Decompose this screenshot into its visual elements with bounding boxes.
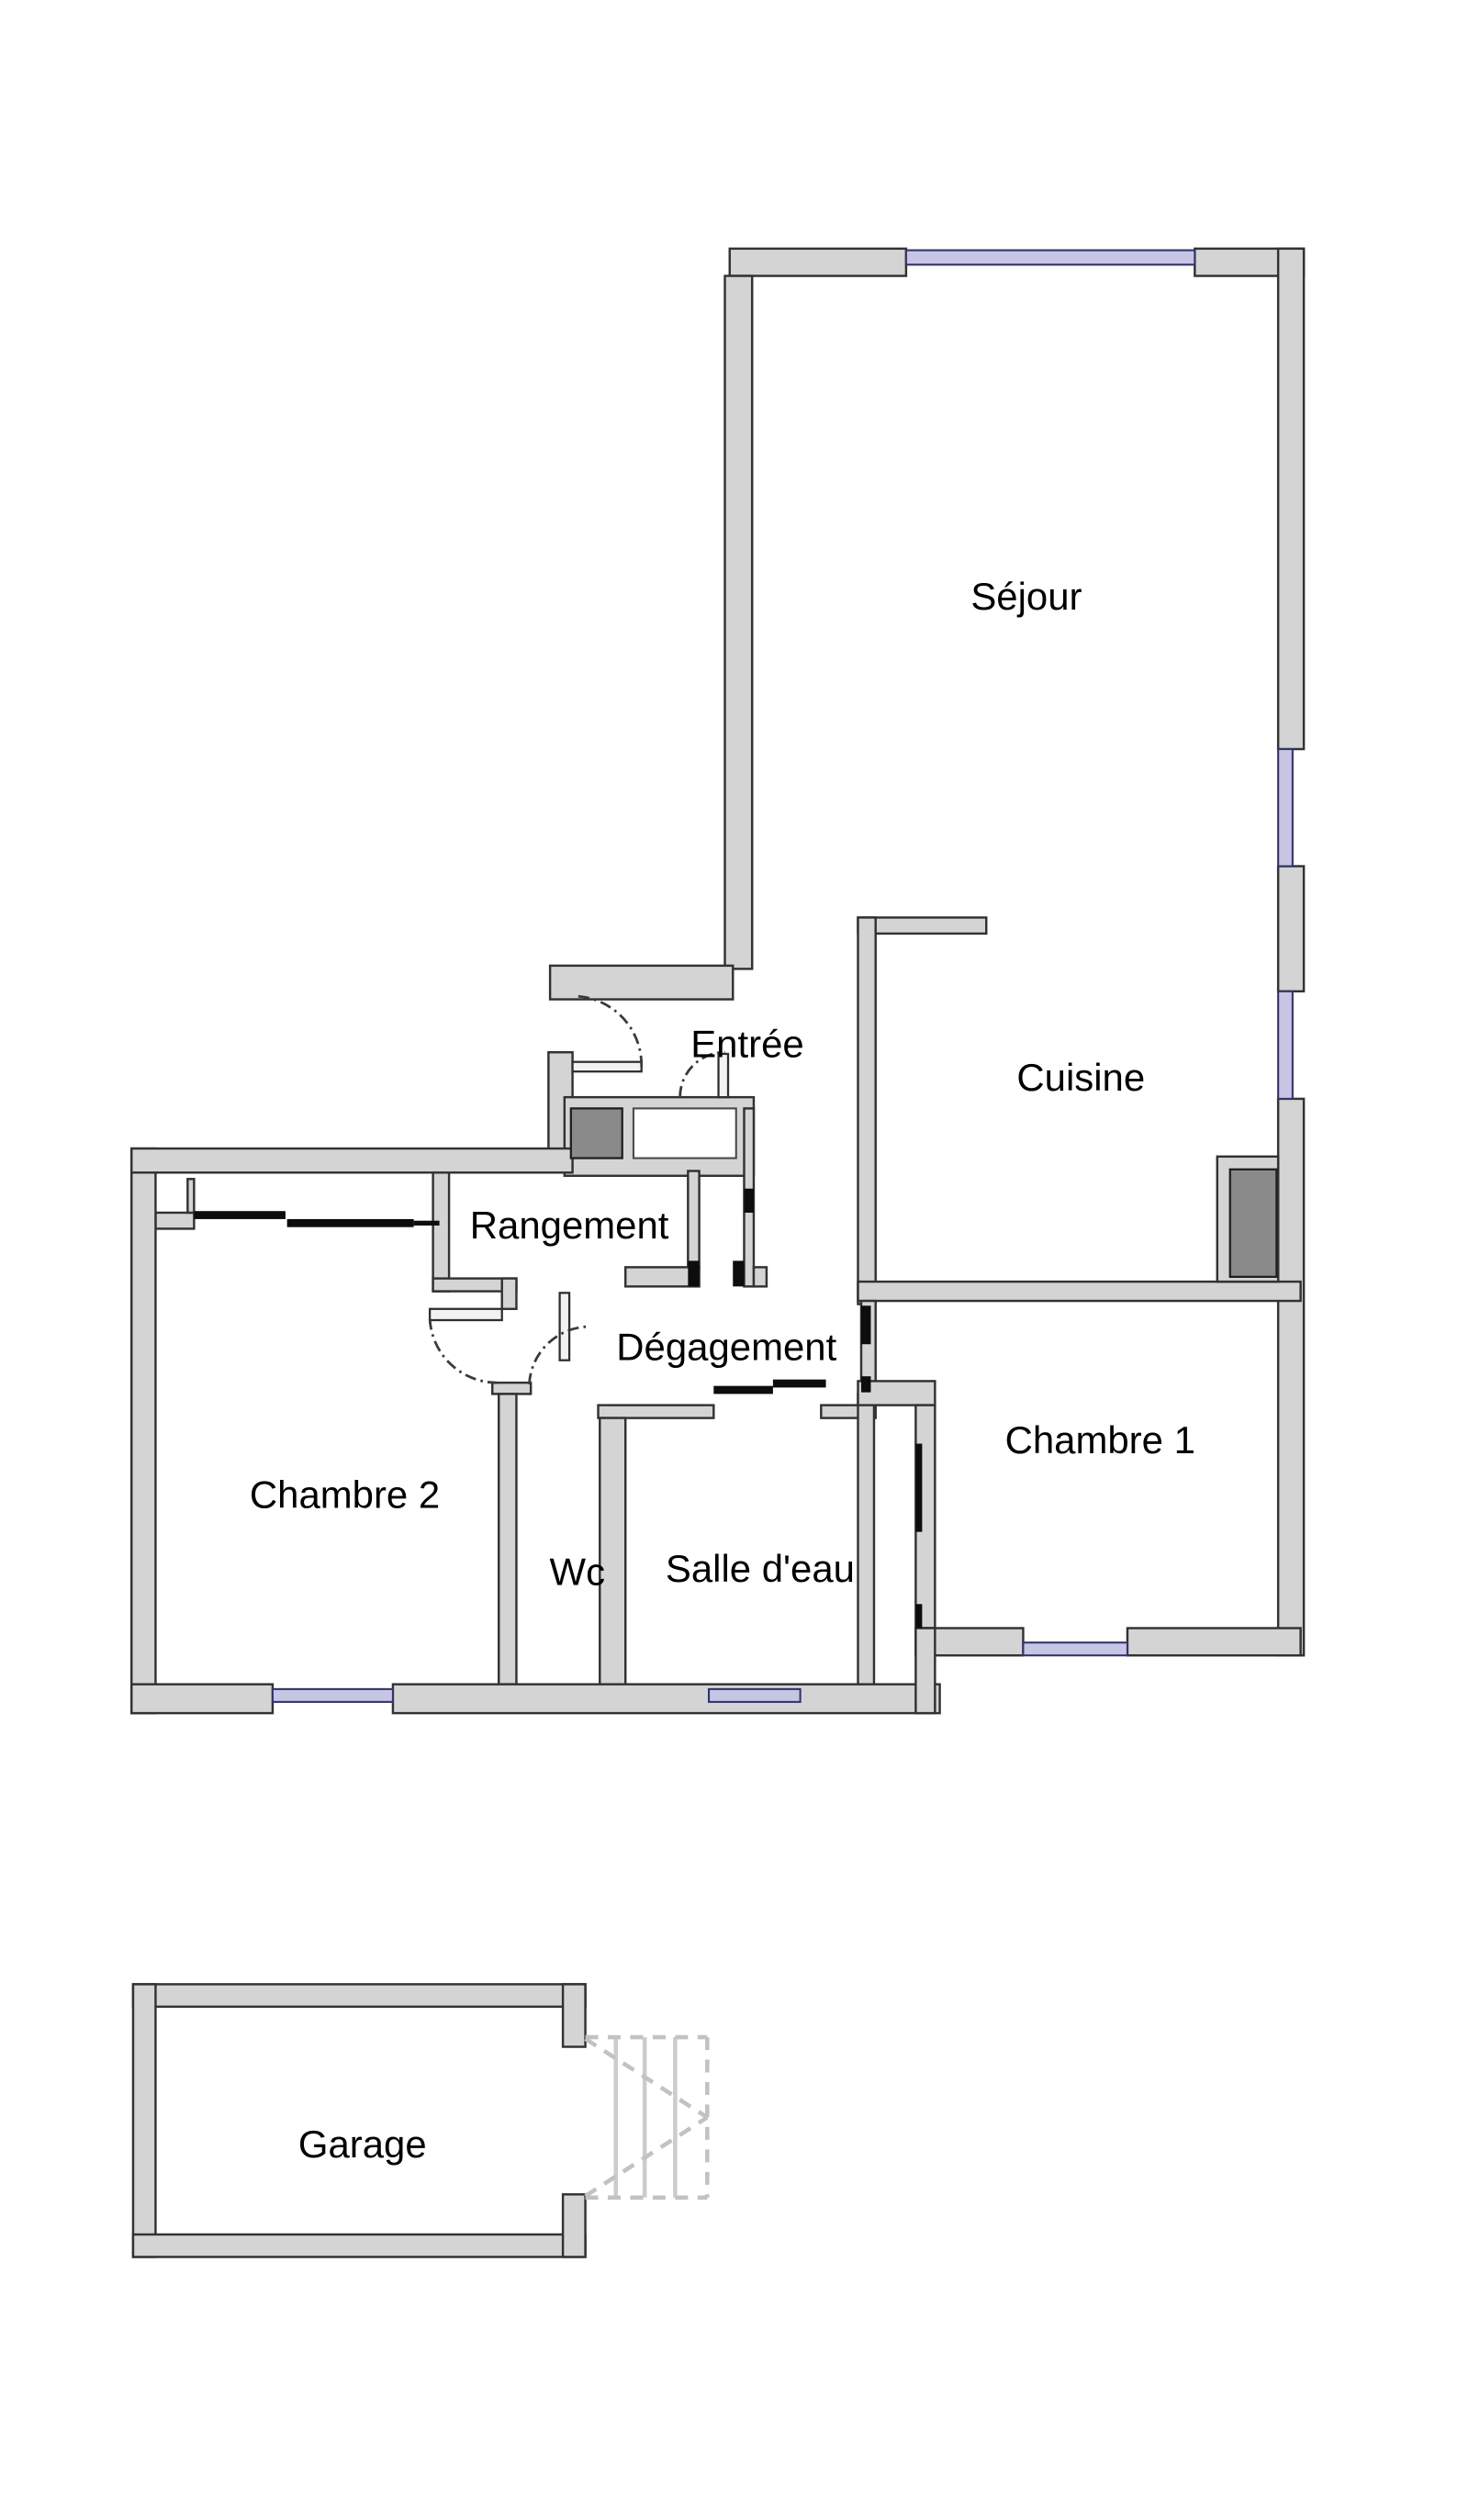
corridor-jamb-right bbox=[733, 1260, 744, 1286]
rangement-left-wall bbox=[433, 1172, 449, 1291]
chambre1-bottom-east bbox=[1127, 1629, 1301, 1656]
right-window-lower bbox=[1278, 991, 1293, 1099]
room-label-chambre-2: Chambre 2 bbox=[250, 1473, 440, 1516]
bottom-wall-west bbox=[131, 1685, 273, 1713]
entrance-door-leaf bbox=[573, 1062, 642, 1071]
sde-door-line-b bbox=[773, 1380, 826, 1388]
chambre2-corner-piece bbox=[492, 1383, 531, 1394]
vestibule-closet bbox=[634, 1108, 736, 1158]
chambre2-window bbox=[273, 1689, 393, 1702]
rangement-door-leaf bbox=[560, 1293, 569, 1360]
entry-jog-wall bbox=[550, 966, 733, 1000]
cuisine-top-stub bbox=[858, 917, 986, 933]
corridor-left-wall bbox=[688, 1171, 699, 1268]
floor-plan-svg: SéjourCuisineEntréeRangementDégagementCh… bbox=[0, 0, 1469, 2520]
room-label-rangement: Rangement bbox=[470, 1204, 669, 1247]
closet-wall-accent-b bbox=[915, 1604, 922, 1628]
closet-left-stub bbox=[155, 1213, 194, 1228]
sde-right-wall bbox=[858, 1394, 873, 1692]
chambre2-right-wall bbox=[499, 1394, 516, 1684]
bottom-wall-mid bbox=[393, 1685, 940, 1713]
sejour-top-window bbox=[906, 251, 1194, 265]
chambre2-door-arc bbox=[430, 1318, 497, 1383]
garage-right-top bbox=[563, 1984, 585, 2046]
garage-bottom-wall bbox=[133, 2234, 586, 2257]
sde-door-line-a bbox=[713, 1386, 773, 1394]
room-label-garage: Garage bbox=[298, 2122, 427, 2166]
wc-top-wall bbox=[599, 1406, 714, 1418]
closet-slider-b bbox=[287, 1219, 414, 1227]
entrance-door-arc bbox=[576, 996, 642, 1067]
room-label-entree: Entrée bbox=[690, 1022, 803, 1065]
cuisine-chimney bbox=[1230, 1170, 1277, 1277]
cuisine-left-wall bbox=[858, 917, 875, 1304]
vestibule-pillar bbox=[571, 1108, 622, 1158]
right-wall-lower bbox=[1278, 1099, 1304, 1655]
room-label-cuisine: Cuisine bbox=[1016, 1056, 1145, 1099]
chambre1-jamb-bottom bbox=[861, 1376, 870, 1392]
room-label-wc: Wc bbox=[550, 1550, 606, 1593]
sejour-top-wall-left bbox=[730, 249, 906, 276]
floor-plan-page: SéjourCuisineEntréeRangementDégagementCh… bbox=[0, 0, 1469, 2520]
chambre2-door-leaf bbox=[430, 1309, 502, 1320]
garage-right-bottom bbox=[563, 2194, 585, 2257]
room-label-degagement: Dégagement bbox=[616, 1326, 836, 1369]
garage-top-wall bbox=[133, 1984, 586, 2006]
closet-wall-accent-a bbox=[915, 1444, 922, 1532]
corridor-jamb-upper bbox=[744, 1189, 753, 1213]
lower-left-wall bbox=[131, 1148, 155, 1713]
cuisine-bottom-wall bbox=[858, 1282, 1300, 1301]
rangement-door-post bbox=[502, 1279, 517, 1309]
salle-deau-window bbox=[709, 1689, 801, 1702]
chambre1-jamb-top bbox=[861, 1305, 870, 1344]
step-connector bbox=[915, 1629, 935, 1714]
closet-slider-thin bbox=[414, 1221, 440, 1226]
corridor-jamb-left bbox=[688, 1260, 699, 1286]
room-label-salle-deau: Salle d'eau bbox=[666, 1547, 855, 1590]
right-wall-mid bbox=[1278, 867, 1304, 991]
right-wall-upper bbox=[1278, 249, 1304, 749]
garage-left-wall bbox=[133, 1984, 155, 2257]
rangement-bottom-east bbox=[754, 1267, 767, 1286]
right-window-upper bbox=[1278, 749, 1293, 867]
chambre1-window bbox=[1023, 1642, 1127, 1655]
closet-slider-a bbox=[194, 1211, 286, 1219]
sejour-left-wall bbox=[725, 276, 753, 969]
room-label-sejour: Séjour bbox=[970, 575, 1082, 618]
room-label-chambre-1: Chambre 1 bbox=[1005, 1418, 1195, 1462]
closet-divider bbox=[187, 1179, 194, 1213]
lower-top-wall bbox=[131, 1148, 572, 1172]
